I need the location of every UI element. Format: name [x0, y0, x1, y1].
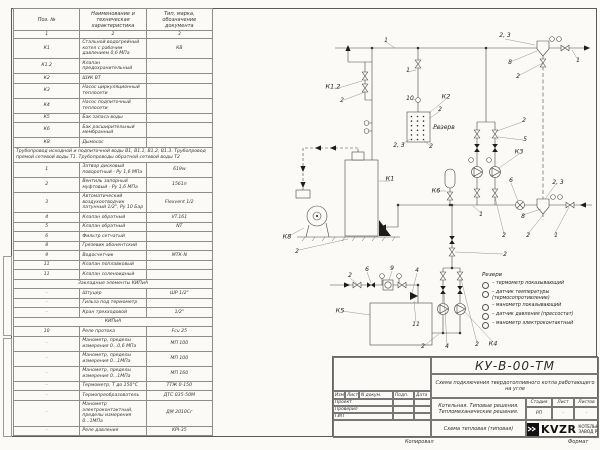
- terminal-dot: [423, 120, 425, 122]
- legend-title: Резерв: [482, 272, 600, 278]
- terminal-dot: [423, 125, 425, 127]
- instrument-circle-icon: [557, 37, 562, 42]
- flow-arrow-icon: [315, 145, 321, 150]
- check-valve-icon: [457, 286, 463, 294]
- rev-cell: [393, 413, 414, 420]
- instrument-circle-icon: [482, 313, 489, 320]
- schematic-label: К3: [515, 148, 524, 156]
- rev-empty-cell: [333, 420, 431, 438]
- rev-cell: [414, 413, 431, 420]
- schematic-label: 11: [412, 321, 420, 328]
- terminal-dot: [411, 116, 413, 118]
- terminal-dot: [417, 120, 419, 122]
- expansion-tank-k6: [445, 169, 455, 188]
- terminal-dot: [423, 116, 425, 118]
- flow-arrow-icon: [330, 145, 336, 150]
- schematic-label: 1: [384, 37, 388, 44]
- instrument-circle-icon: [558, 195, 563, 200]
- schematic-label: К2: [442, 93, 451, 101]
- object-name: Котельная. Типовые решения. Тепломеханич…: [431, 398, 526, 420]
- check-valve-icon: [440, 286, 446, 294]
- instrument-legend: Резерв – термометр показывающий– датчик …: [482, 272, 600, 330]
- valve-icon: [474, 189, 480, 197]
- schematic-label: 2: [421, 343, 425, 350]
- schematic-label: 9: [390, 265, 394, 272]
- terminal-dot: [417, 130, 419, 132]
- flow-arrow-icon: [580, 202, 586, 207]
- document-number: КУ-В-00-ТМ: [431, 357, 599, 374]
- schematic-label: 8: [521, 213, 525, 220]
- storage-tank-k5: [370, 303, 432, 345]
- legend-item: – датчик давления (прессостат): [482, 312, 600, 320]
- schematic-label: 2: [526, 232, 530, 239]
- sheet-name: Схема тепловая (типовая): [431, 420, 526, 438]
- schematic-label: 4: [415, 267, 419, 274]
- instrument-circle-icon: [551, 195, 556, 200]
- company-logo: KVZR КОТЕЛЬН ЗАВОД Р: [526, 423, 599, 436]
- valve-icon: [492, 189, 498, 197]
- instrument-circle-icon: [380, 274, 385, 279]
- pump-icon: [472, 167, 483, 178]
- dirt-separator-icon: [537, 199, 549, 214]
- rev-header-izm: Изм: [333, 391, 345, 399]
- pipe-junction-dot: [451, 267, 453, 269]
- legend-item-text: – датчик давления (прессостат): [492, 312, 573, 318]
- schematic-label: К1.2: [326, 83, 341, 91]
- pipe-junction-dot: [485, 47, 487, 49]
- float-valve: [410, 292, 418, 300]
- legend-item: – манометр показывающий: [482, 303, 600, 311]
- schematic-label: К8: [283, 233, 292, 241]
- schematic-label: 2: [475, 341, 479, 348]
- rev-cell: [393, 406, 414, 413]
- check-valve-icon: [367, 282, 375, 288]
- instrument-circle-icon: [416, 98, 421, 103]
- legend-item: – термометр показывающий: [482, 281, 600, 289]
- instrument-circle-icon: [364, 129, 369, 134]
- pump-icon: [455, 304, 466, 315]
- valve-icon: [440, 272, 446, 280]
- instrument-circle-icon: [397, 274, 402, 279]
- instrument-circle-icon: [482, 304, 489, 311]
- valve-icon: [492, 130, 498, 138]
- rev-row-proekt: Проект: [333, 399, 393, 406]
- valve-icon: [457, 272, 463, 280]
- terminal-dot: [411, 130, 413, 132]
- valve-icon: [561, 45, 569, 51]
- valve-icon: [566, 202, 574, 208]
- company-name: КОТЕЛЬН ЗАВОД Р: [578, 424, 599, 435]
- instrument-circle-icon: [482, 322, 489, 329]
- schematic-label: 2: [516, 73, 520, 80]
- pipe-junction-dot: [371, 47, 373, 49]
- terminal-dot: [411, 139, 413, 141]
- schematic-label: 2: [340, 97, 344, 104]
- legend-item-text: – манометр электроконтактный: [492, 321, 573, 327]
- legend-item-text: – датчик температуры (термосопротивление…: [492, 290, 600, 302]
- terminal-dot: [411, 125, 413, 127]
- schematic-label: 2, 3: [552, 179, 563, 186]
- terminal-dot: [423, 134, 425, 136]
- rev-cell: [414, 399, 431, 406]
- schematic-label: 1: [479, 211, 483, 218]
- rev-header-ndokum: N докум.: [359, 391, 393, 399]
- valve-icon: [447, 192, 453, 200]
- pipe-junction-dot: [397, 204, 399, 206]
- check-valve-icon: [449, 236, 455, 244]
- sheet-header: Лист: [552, 398, 574, 407]
- stage-header: Стадия: [526, 398, 552, 407]
- terminal-dot: [417, 116, 419, 118]
- document-title: Схема подключения твердотопливного котла…: [431, 374, 599, 398]
- schematic-label: 2: [295, 248, 299, 255]
- terminal-dot: [411, 120, 413, 122]
- schematic-label: 1: [406, 67, 410, 74]
- terminal-dot: [423, 139, 425, 141]
- rev-row-proveril: Проверил: [333, 406, 393, 413]
- flow-arrow-icon: [300, 166, 305, 172]
- sheets-header: Листов: [574, 398, 599, 407]
- flow-arrow-icon: [344, 282, 350, 287]
- schematic-label: 1: [554, 232, 558, 239]
- valve-icon: [353, 282, 361, 288]
- format-label: Формат: [568, 439, 600, 445]
- legend-item-text: – манометр показывающий: [492, 303, 561, 309]
- legend-item-text: – термометр показывающий: [492, 281, 564, 287]
- stage-value: РП: [526, 407, 552, 420]
- schematic-label: 4: [445, 343, 449, 350]
- schematic-label: 6: [509, 177, 513, 184]
- boiler-flue-nozzle: [352, 152, 364, 160]
- schematic-label: К6: [432, 187, 441, 195]
- schematic-label: 1: [576, 57, 580, 64]
- pipe-junction-dot: [451, 204, 453, 206]
- pipe-junction-dot: [459, 332, 461, 334]
- rev-header-list: Лист: [345, 391, 359, 399]
- schematic-label: Резерв: [433, 124, 455, 131]
- schematic-label: 2: [502, 232, 506, 239]
- instrument-circle-icon: [469, 158, 474, 163]
- rev-cell: [393, 399, 414, 406]
- pipe-junction-dot: [417, 47, 419, 49]
- rev-header-podp: Подп.: [393, 391, 414, 399]
- check-valve-icon: [492, 144, 498, 152]
- valve-icon: [415, 60, 421, 68]
- terminal-dot: [423, 130, 425, 132]
- sheet-value: -: [552, 407, 574, 420]
- cabinet-k2: [407, 112, 430, 142]
- schematic-label: К4: [489, 340, 498, 348]
- revision-table: Изм Лист N докум. Подп. Дата Проект Пров…: [333, 357, 431, 438]
- flow-arrow-icon: [300, 182, 305, 188]
- sheets-value: -: [574, 407, 599, 420]
- valve-icon: [362, 72, 368, 80]
- instrument-circle-icon: [487, 158, 492, 163]
- flow-arrow-icon: [584, 45, 590, 50]
- rev-cell: [414, 406, 431, 413]
- pump-icon: [438, 304, 449, 315]
- schematic-label: 2, 3: [393, 142, 404, 149]
- rev-empty-cell: [333, 357, 431, 391]
- dirt-separator-icon: [537, 41, 549, 56]
- schematic-label: 5: [523, 136, 527, 143]
- title-block: Изм Лист N докум. Подп. Дата Проект Пров…: [332, 356, 598, 437]
- pipe-junction-dot: [442, 332, 444, 334]
- foundation-hatch: [302, 237, 395, 241]
- legend-item: – манометр электроконтактный: [482, 321, 600, 329]
- boiler-k1: [345, 160, 378, 236]
- valve-icon: [362, 84, 368, 92]
- instrument-circle-icon: [482, 282, 489, 289]
- valve-icon: [449, 248, 455, 256]
- schematic-label: 2, 3: [499, 32, 510, 39]
- schematic-label: 2: [348, 272, 352, 279]
- terminal-dot: [417, 125, 419, 127]
- terminal-dot: [411, 134, 413, 136]
- terminal-dot: [417, 139, 419, 141]
- fan-k8-hub: [316, 215, 318, 217]
- schematic-label: К1: [386, 175, 395, 183]
- water-meter-dial: [385, 282, 391, 288]
- copied-label: Копировал: [405, 439, 434, 445]
- schematic-label: 6: [365, 266, 369, 273]
- pipe-junction-dot: [417, 284, 419, 286]
- drawing-sheet: Поз. № Наименование и техническая характ…: [0, 0, 600, 450]
- legend-item: – датчик температуры (термосопротивление…: [482, 290, 600, 302]
- schematic-label: К5: [336, 307, 345, 315]
- instrument-circle-icon: [550, 37, 555, 42]
- rev-row-gip: ГИП: [333, 413, 393, 420]
- schematic-label: 2: [429, 143, 433, 150]
- schematic-label: 8: [508, 59, 512, 66]
- check-valve-icon: [474, 144, 480, 152]
- schematic-label: 2: [438, 106, 442, 113]
- company-cell: KVZR КОТЕЛЬН ЗАВОД Р: [526, 420, 599, 438]
- valve-icon: [398, 282, 406, 288]
- valve-icon: [474, 130, 480, 138]
- fan-k8-outlet: [296, 190, 310, 198]
- instrument-circle-icon: [364, 121, 369, 126]
- terminal-dot: [417, 134, 419, 136]
- rev-header-data: Дата: [414, 391, 431, 399]
- schematic-label: 10: [406, 95, 414, 102]
- kvzr-zigzag-icon: [526, 423, 539, 436]
- schematic-label: 2: [503, 251, 507, 258]
- instrument-circle-icon: [482, 291, 489, 298]
- pump-icon: [490, 167, 501, 178]
- kvzr-logo-text: KVZR: [541, 423, 576, 436]
- schematic-label: 2: [522, 117, 526, 124]
